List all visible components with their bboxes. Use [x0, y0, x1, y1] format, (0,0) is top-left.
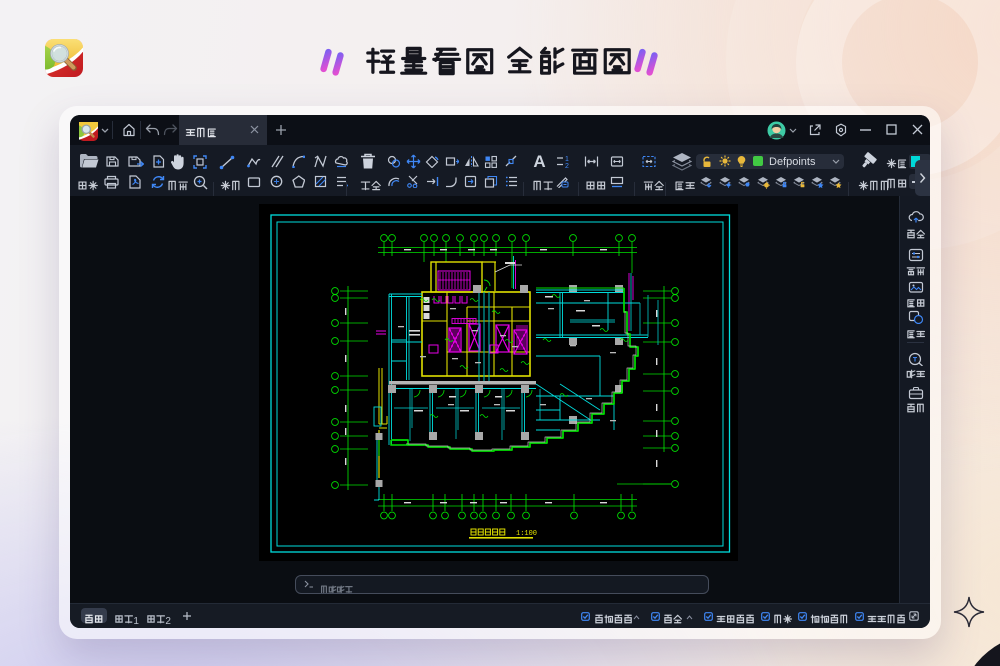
svg-text:1:100: 1:100 [516, 530, 537, 538]
svg-text:2: 2 [565, 163, 569, 168]
svg-text:1: 1 [565, 156, 569, 163]
svg-text:A: A [533, 152, 545, 170]
